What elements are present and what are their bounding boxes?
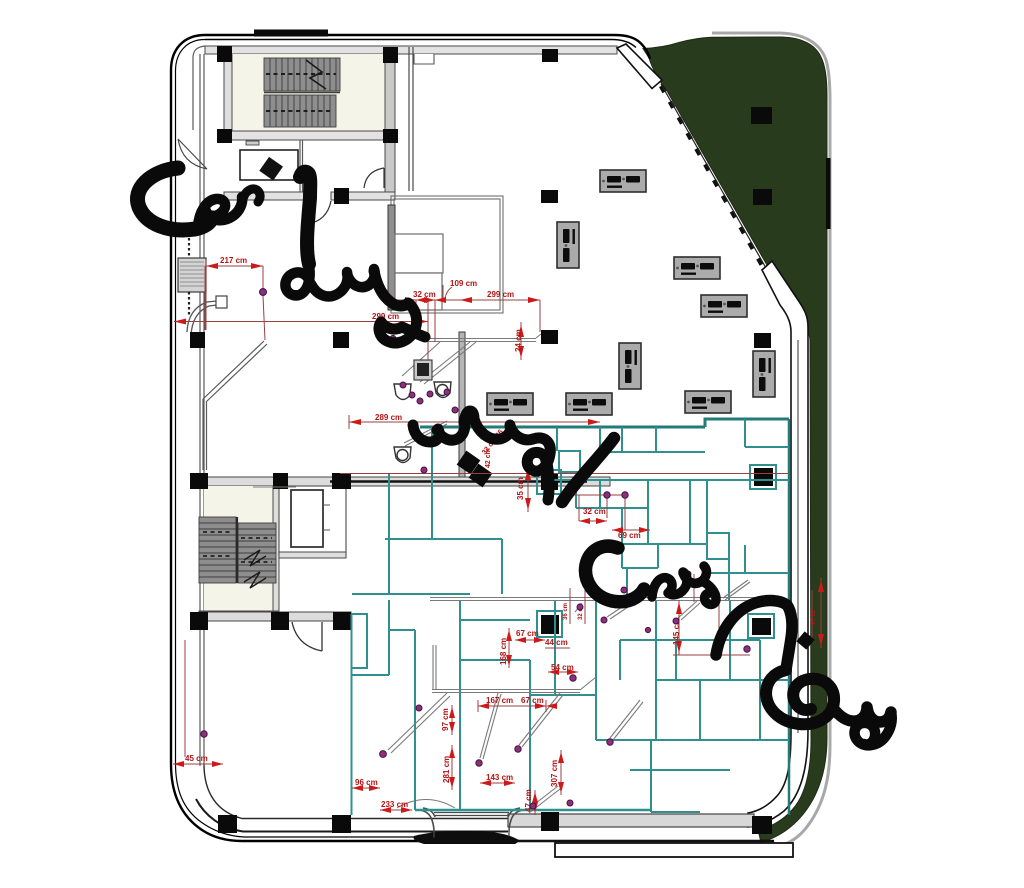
- svg-text:167 cm: 167 cm: [486, 696, 513, 705]
- svg-text:96 cm: 96 cm: [355, 778, 378, 787]
- svg-text:32 cm: 32 cm: [583, 507, 606, 516]
- svg-text:69 cm: 69 cm: [618, 531, 641, 540]
- svg-text:143 cm: 143 cm: [486, 773, 513, 782]
- svg-text:32 cm: 32 cm: [413, 290, 436, 299]
- svg-text:168 cm: 168 cm: [499, 638, 508, 665]
- svg-text:45 cm: 45 cm: [185, 754, 208, 763]
- svg-text:67 cm: 67 cm: [516, 629, 539, 638]
- svg-text:281 cm: 281 cm: [442, 756, 451, 783]
- svg-text:109 cm: 109 cm: [450, 279, 477, 288]
- svg-text:44 cm: 44 cm: [545, 638, 568, 647]
- svg-text:35 cm: 35 cm: [516, 477, 525, 500]
- svg-text:307 cm: 307 cm: [550, 760, 559, 787]
- svg-text:299 cm: 299 cm: [487, 290, 514, 299]
- svg-text:24 cm: 24 cm: [514, 329, 523, 352]
- svg-text:233 cm: 233 cm: [381, 800, 408, 809]
- svg-text:67 cm: 67 cm: [521, 696, 544, 705]
- svg-text:54 cm: 54 cm: [551, 663, 574, 672]
- svg-text:97 cm: 97 cm: [441, 708, 450, 731]
- svg-text:97 18: 97 18: [811, 609, 817, 625]
- svg-text:289 cm: 289 cm: [375, 413, 402, 422]
- svg-text:217 cm: 217 cm: [220, 256, 247, 265]
- svg-text:36 cm: 36 cm: [563, 603, 569, 620]
